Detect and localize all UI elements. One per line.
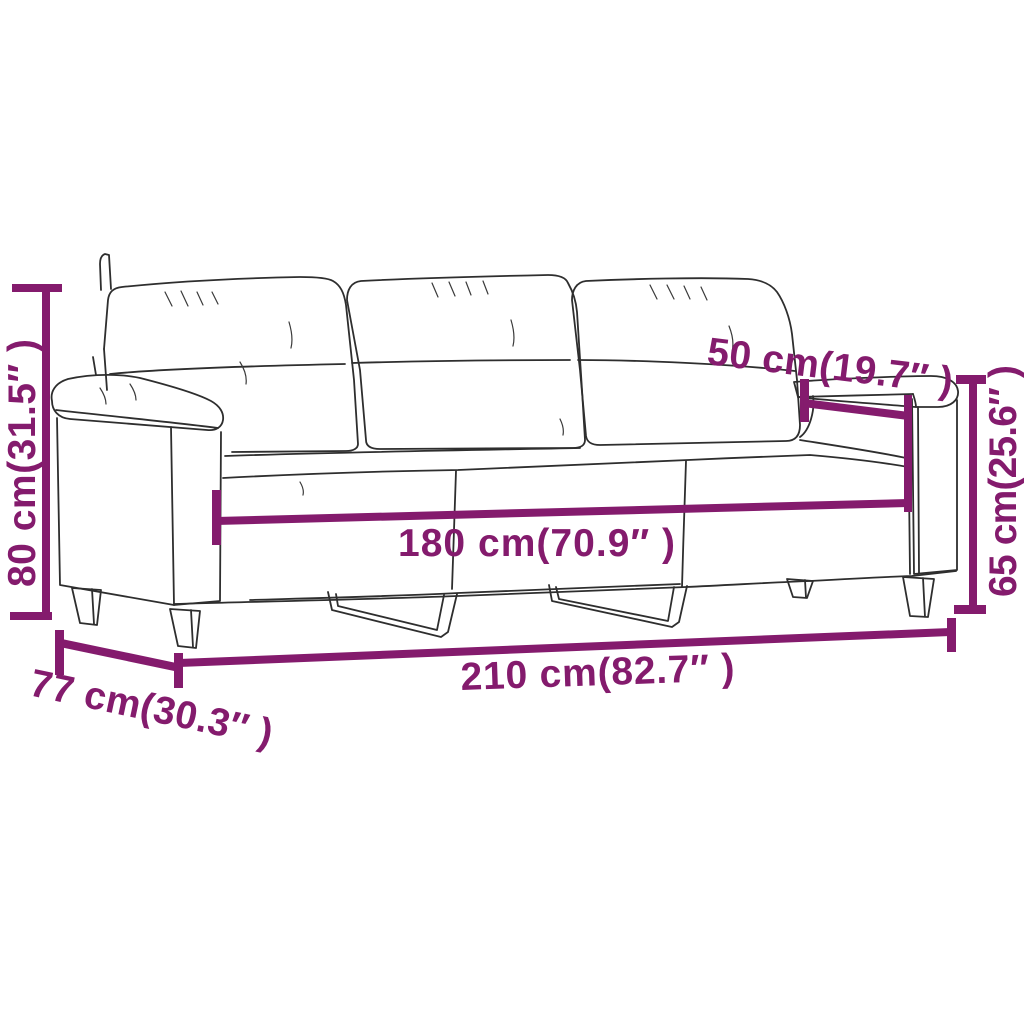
svg-text:180 cm(70.9″ ): 180 cm(70.9″ ): [398, 522, 675, 565]
svg-text:80 cm(31.5″ ): 80 cm(31.5″ ): [1, 339, 44, 587]
svg-text:65 cm(25.6″ ): 65 cm(25.6″ ): [982, 365, 1024, 597]
